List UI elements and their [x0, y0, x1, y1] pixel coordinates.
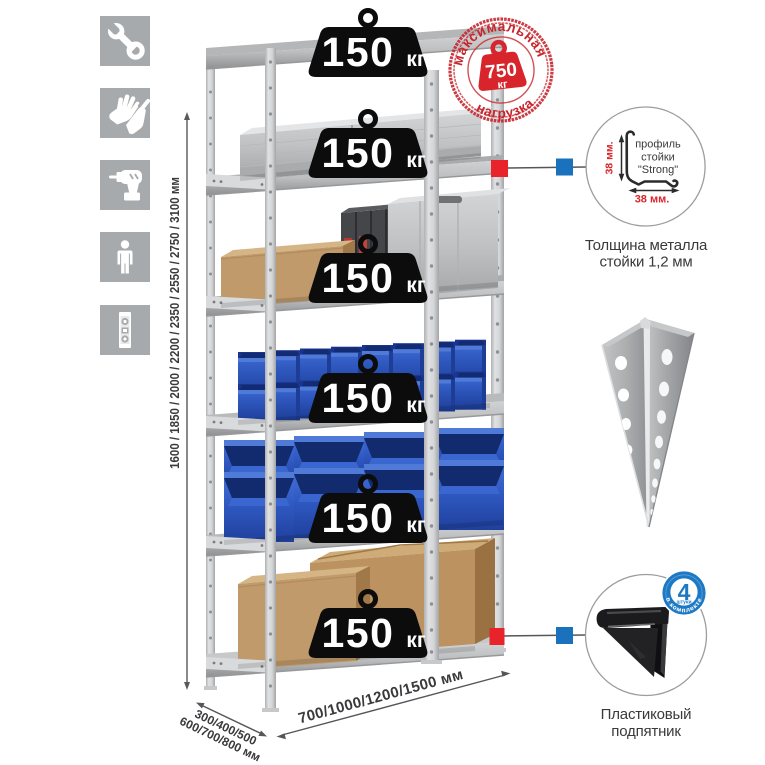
- svg-text:150: 150: [322, 29, 395, 75]
- svg-text:150: 150: [322, 375, 395, 421]
- svg-text:150: 150: [322, 495, 395, 541]
- svg-text:стойки: стойки: [641, 152, 675, 164]
- svg-text:Толщина металла: Толщина металла: [585, 237, 708, 254]
- svg-text:штуки: штуки: [676, 600, 691, 606]
- svg-text:кг: кг: [406, 514, 426, 537]
- svg-text:кг: кг: [406, 274, 426, 297]
- svg-text:"Strong": "Strong": [638, 164, 678, 176]
- svg-text:кг: кг: [406, 149, 426, 172]
- svg-text:150: 150: [322, 255, 395, 301]
- svg-text:профиль: профиль: [635, 139, 681, 151]
- svg-text:Пластиковый: Пластиковый: [601, 706, 692, 723]
- svg-text:1600 / 1850 / 2000 / 2200 / 23: 1600 / 1850 / 2000 / 2200 / 2350 / 2550 …: [168, 177, 183, 469]
- svg-text:кг: кг: [497, 78, 509, 91]
- svg-text:кг: кг: [406, 394, 426, 417]
- svg-text:стойки 1,2 мм: стойки 1,2 мм: [599, 254, 692, 271]
- svg-text:150: 150: [322, 610, 395, 656]
- svg-text:кг: кг: [406, 48, 426, 71]
- svg-text:подпятник: подпятник: [611, 723, 681, 740]
- svg-text:38 мм.: 38 мм.: [635, 194, 670, 206]
- svg-text:кг: кг: [406, 629, 426, 652]
- svg-text:150: 150: [322, 130, 395, 176]
- svg-text:38 мм.: 38 мм.: [604, 141, 616, 174]
